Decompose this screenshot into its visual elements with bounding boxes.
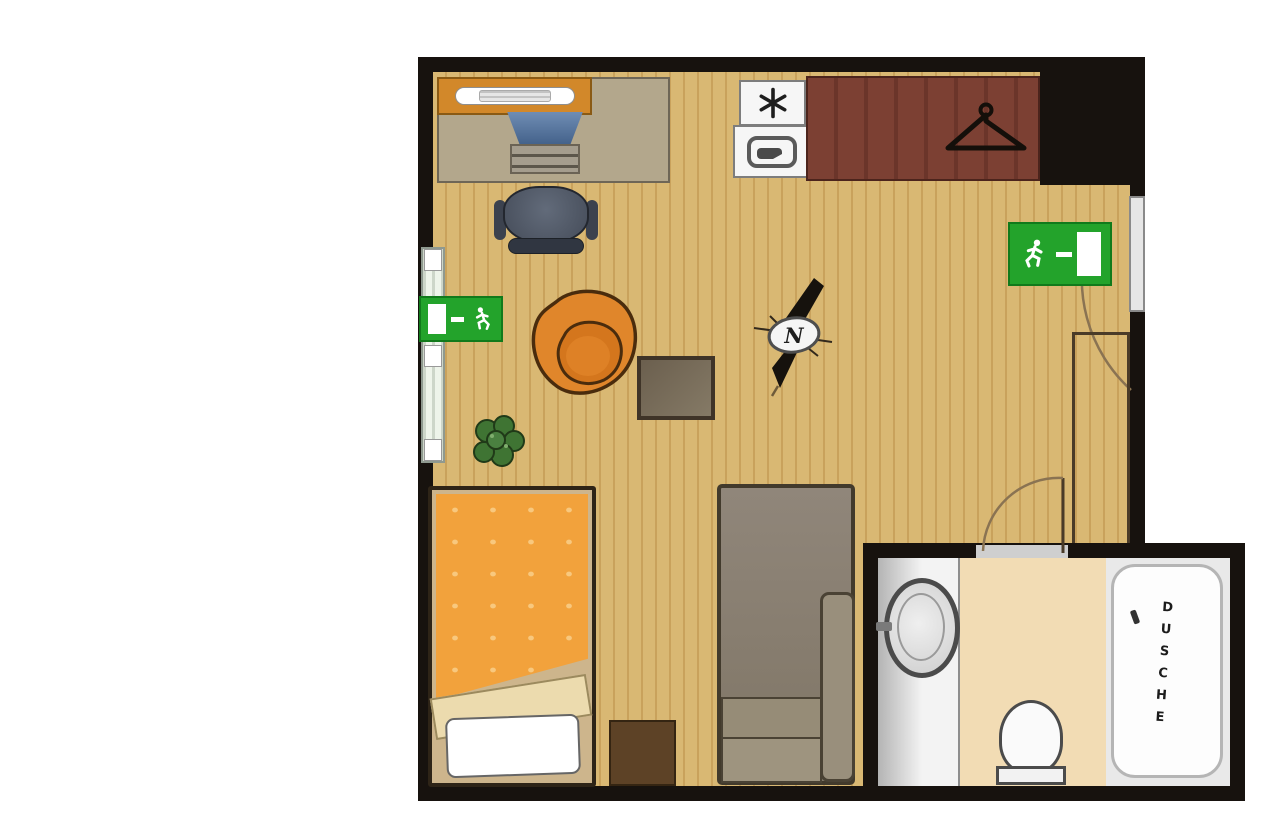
exit-sign-left — [419, 296, 503, 342]
running-man-icon — [469, 306, 495, 332]
window-sill — [424, 439, 442, 461]
window-sill — [424, 345, 442, 367]
hanger-icon — [940, 101, 1030, 157]
nightstand — [609, 720, 676, 786]
office-chair — [494, 186, 598, 256]
exit-arrow-dash — [451, 317, 464, 322]
running-man-icon — [1019, 238, 1051, 270]
wardrobe — [806, 76, 1040, 181]
compass-north-label: N — [783, 323, 804, 348]
bed-pillow — [445, 714, 581, 779]
wall-niche — [1072, 332, 1130, 553]
exit-sign-right — [1008, 222, 1112, 286]
bed — [428, 486, 596, 787]
window — [421, 247, 445, 463]
toilet — [999, 700, 1063, 774]
freezer-box — [739, 80, 806, 126]
washbasin — [884, 578, 960, 678]
chair-seat — [503, 186, 589, 244]
faucet — [876, 622, 892, 631]
entry-void — [1040, 72, 1130, 185]
sofa-armrest — [820, 592, 855, 782]
sofa-cushion — [721, 737, 822, 783]
keyboard — [455, 87, 575, 105]
chair-back — [508, 238, 584, 254]
desk-shelf — [437, 77, 592, 115]
exit-arrow-dash — [1056, 252, 1072, 257]
sofa-cushion — [721, 697, 822, 739]
snowflake-icon — [755, 85, 791, 121]
side-table — [637, 356, 715, 420]
washbasin-inner — [897, 593, 945, 661]
compass-rose-icon: N — [750, 276, 836, 398]
exit-door-glyph — [1077, 232, 1101, 276]
bed-duvet — [436, 494, 588, 700]
cooktop-box — [733, 125, 811, 178]
floor-plan: N — [0, 0, 1280, 821]
toilet-tank — [996, 766, 1066, 785]
bathroom-door-arc — [978, 474, 1070, 560]
window-sill — [424, 249, 442, 271]
shower: DUSCHE — [1106, 558, 1230, 786]
armchair — [526, 284, 642, 402]
potted-plant — [466, 410, 528, 472]
keyboard-keys — [479, 90, 551, 102]
exit-door-glyph — [428, 304, 446, 334]
cooktop-icon — [746, 135, 798, 169]
monitor-base — [510, 144, 580, 174]
